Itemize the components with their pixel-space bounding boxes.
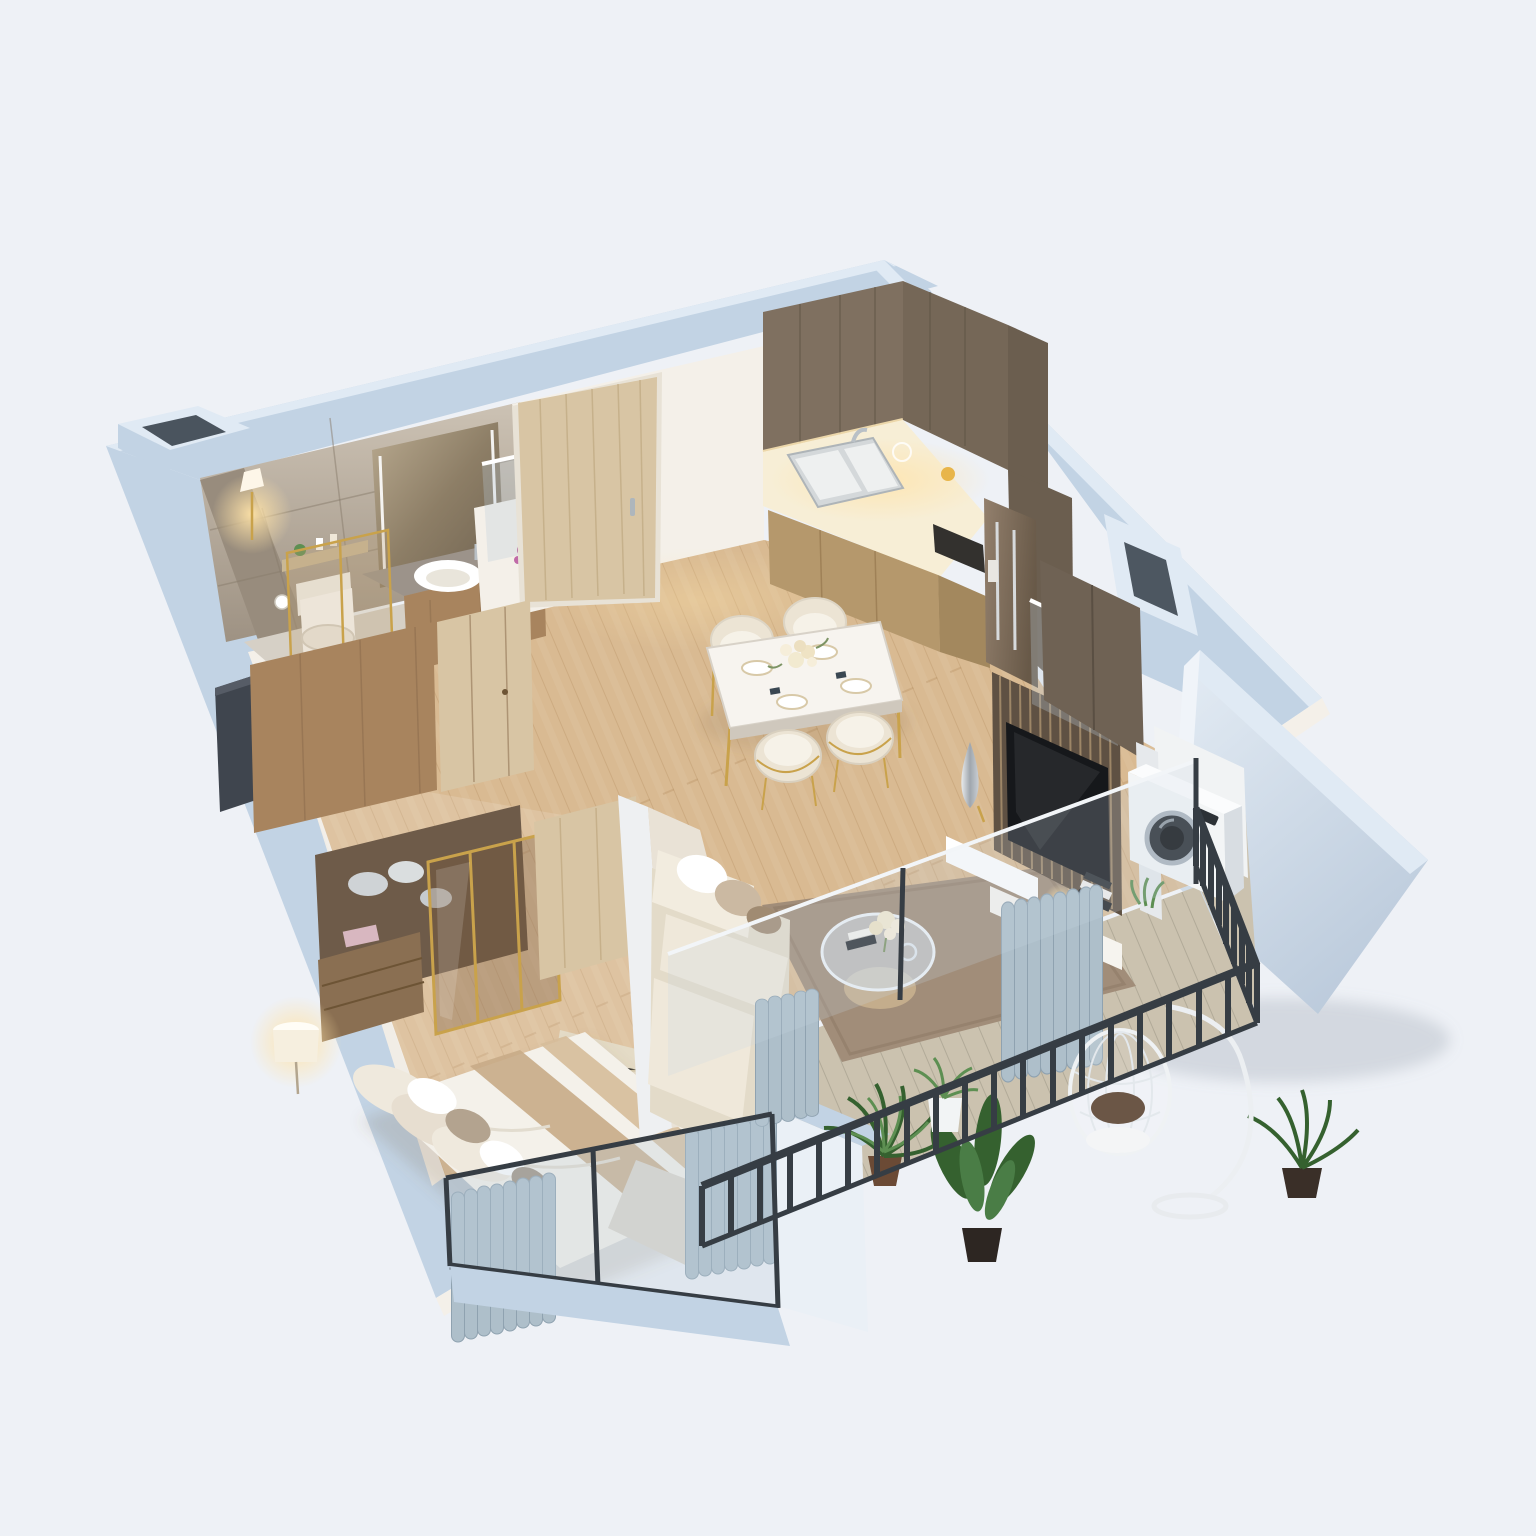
chair-cushion <box>1091 1092 1145 1124</box>
apartment-isometric-svg: 3D isometric cutaway floor plan of a one… <box>0 0 1536 1536</box>
fridge <box>984 498 1038 688</box>
chair-seat-cushion <box>1086 1127 1150 1153</box>
fridge-handle-right <box>1014 530 1015 650</box>
floorplan-render: 3D isometric cutaway floor plan of a one… <box>0 0 1536 1536</box>
dark-console <box>215 676 256 812</box>
fridge-dispenser <box>988 560 998 582</box>
toilet-paper-holder <box>275 595 289 609</box>
folded-clothes-2 <box>388 861 424 883</box>
sink-basin <box>426 569 470 587</box>
door-handle <box>630 498 635 516</box>
entrance-door <box>512 372 662 608</box>
door-leaf <box>518 377 657 602</box>
folded-clothes <box>348 872 388 896</box>
counter-bottle <box>941 467 955 481</box>
wardrobe-handle <box>502 689 508 695</box>
hall-wardrobe-door <box>437 600 534 792</box>
living-glass-post <box>900 868 903 1000</box>
